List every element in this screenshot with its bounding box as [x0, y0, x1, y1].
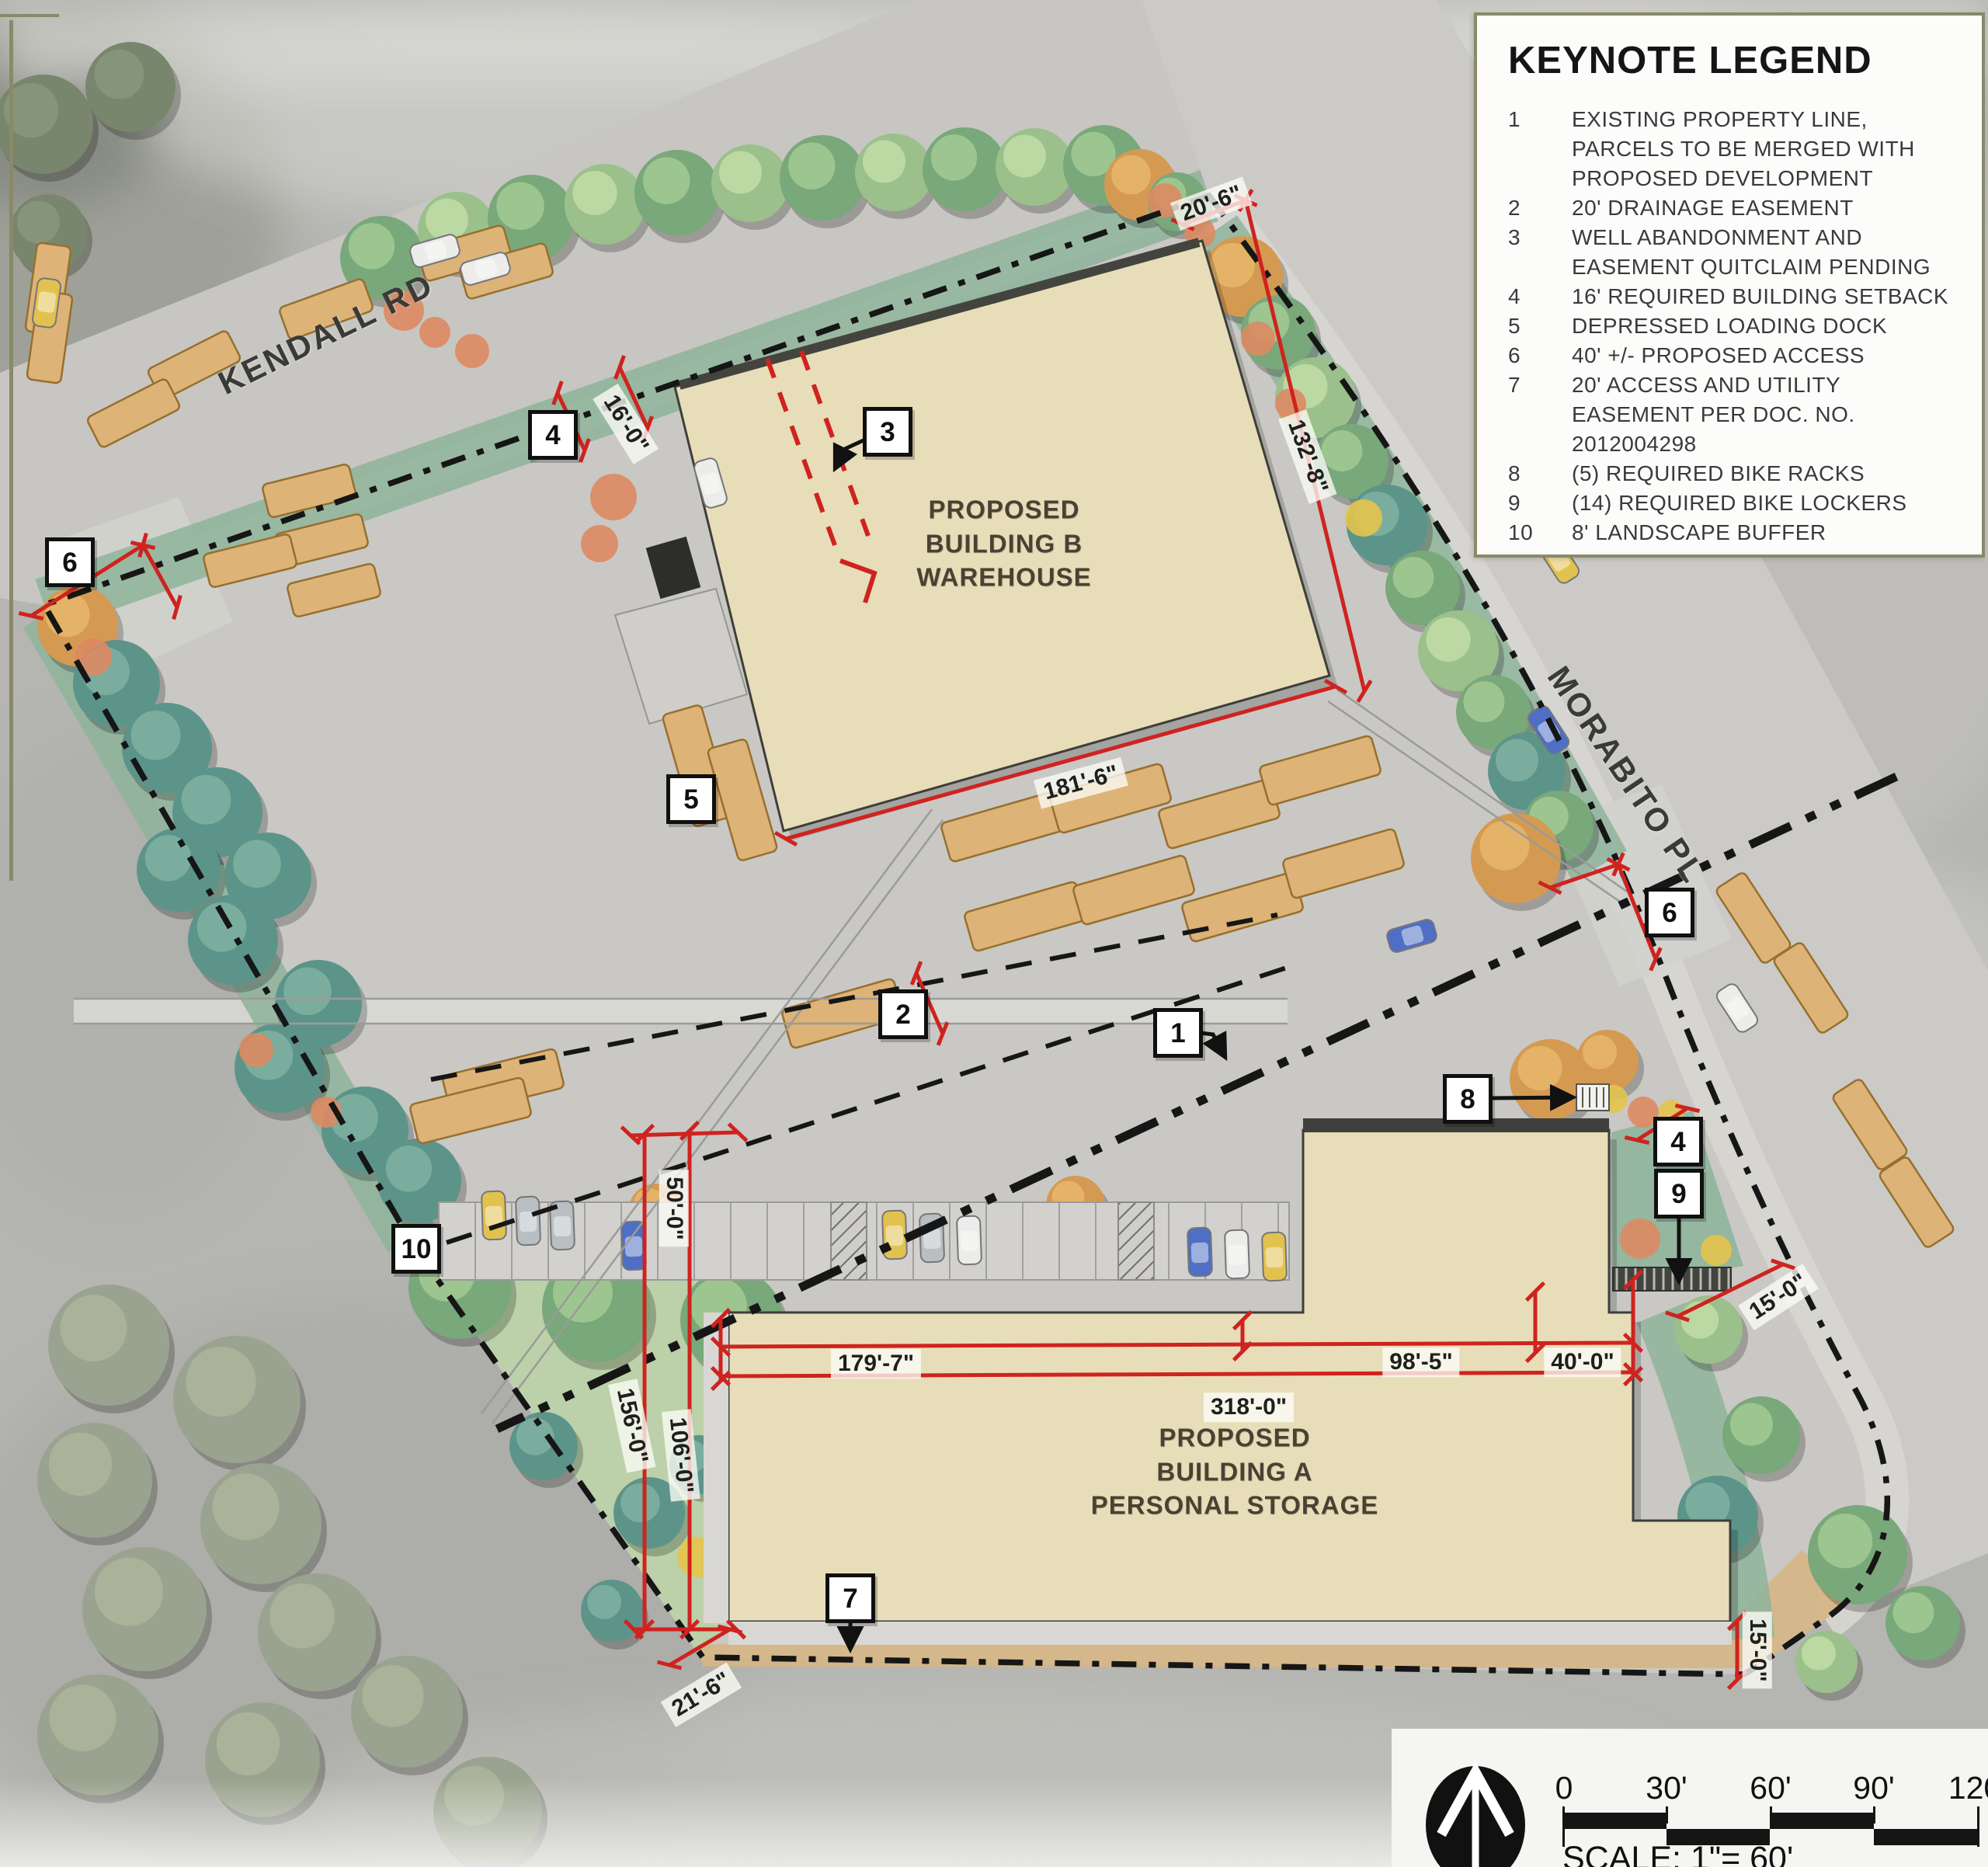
- north-arrow-icon: [1420, 1760, 1536, 1867]
- tree-highlight: [620, 1483, 660, 1523]
- keynote-leader: [1491, 1097, 1572, 1098]
- tree-highlight: [95, 1558, 163, 1626]
- tree-highlight: [50, 1684, 116, 1751]
- legend-item-number: 5: [1508, 311, 1572, 341]
- legend-item: 8 (5) REQUIRED BIKE RACKS: [1508, 459, 1962, 488]
- tree-highlight: [145, 835, 191, 881]
- tree-highlight: [931, 134, 977, 180]
- keynote-legend: KEYNOTE LEGEND 1 EXISTING PROPERTY LINE,…: [1474, 12, 1985, 558]
- legend-item-number: 6: [1508, 341, 1572, 370]
- car-roof: [961, 1231, 978, 1252]
- legend-item-number: 10: [1508, 518, 1572, 548]
- legend-item-text: (5) REQUIRED BIKE RACKS: [1572, 459, 1962, 488]
- coral-shrub: [1241, 322, 1275, 356]
- yellow-shrub: [1701, 1235, 1732, 1266]
- tree-highlight: [1393, 557, 1434, 598]
- tree-highlight: [182, 775, 231, 825]
- tree-highlight: [1818, 1514, 1872, 1568]
- scale-bar: 0 30' 60' 90' 120': [1562, 1755, 1982, 1848]
- tree-highlight: [1517, 1046, 1562, 1090]
- legend-item: 1 EXISTING PROPERTY LINE, PARCELS TO BE …: [1508, 105, 1962, 193]
- car-roof: [625, 1236, 643, 1257]
- tree-highlight: [131, 711, 181, 760]
- coral-shrub: [1628, 1097, 1659, 1128]
- tree-highlight: [95, 50, 144, 99]
- coral-shrub: [590, 474, 637, 520]
- scale-seg-4: [1874, 1829, 1978, 1845]
- scale-tick-60: 60': [1750, 1772, 1791, 1804]
- tree-highlight: [233, 840, 281, 888]
- building-a-south-walk: [728, 1622, 1732, 1645]
- tree-highlight: [587, 1585, 621, 1619]
- tree-highlight: [719, 151, 762, 194]
- scale-panel: 0 30' 60' 90' 120' SCALE: 1"= 60': [1392, 1729, 1988, 1867]
- scale-seg-1: [1562, 1813, 1667, 1829]
- legend-item-text: 40' +/- PROPOSED ACCESS: [1572, 341, 1962, 370]
- tree-highlight: [1111, 155, 1151, 195]
- tree-highlight: [1003, 135, 1046, 178]
- coral-shrub: [1620, 1219, 1660, 1259]
- sheet-border-left: [9, 20, 13, 881]
- tree-highlight: [217, 1712, 280, 1775]
- legend-item-text: 16' REQUIRED BUILDING SETBACK: [1572, 282, 1962, 311]
- scale-text: SCALE: 1"= 60': [1562, 1842, 1793, 1867]
- yellow-shrub: [1345, 499, 1382, 537]
- legend-item-number: 4: [1508, 282, 1572, 311]
- bike-lockers: [1613, 1267, 1731, 1291]
- building-a-west-walk: [704, 1312, 728, 1623]
- coral-shrub: [581, 525, 618, 562]
- legend-item: 10 8' LANDSCAPE BUFFER: [1508, 518, 1962, 548]
- legend-item-text: (14) REQUIRED BIKE LOCKERS: [1572, 488, 1962, 518]
- legend-item: 5 DEPRESSED LOADING DOCK: [1508, 311, 1962, 341]
- legend-item: 2 20' DRAINAGE EASEMENT: [1508, 193, 1962, 223]
- hatched-stall: [1118, 1202, 1154, 1280]
- building-a-roof-edge: [1303, 1118, 1609, 1132]
- car-roof: [1191, 1243, 1209, 1264]
- tree-highlight: [1583, 1035, 1617, 1069]
- tree-highlight: [186, 1347, 255, 1417]
- tree-highlight: [349, 223, 394, 269]
- tree-highlight: [269, 1584, 335, 1649]
- tree-highlight: [49, 1433, 112, 1496]
- tree-highlight: [1802, 1636, 1836, 1671]
- tree-highlight: [1426, 617, 1470, 662]
- tree-highlight: [1893, 1592, 1934, 1633]
- scale-tick-90: 90': [1853, 1772, 1894, 1804]
- legend-item-number: 9: [1508, 488, 1572, 518]
- tree-highlight: [1730, 1403, 1773, 1446]
- tree-highlight: [283, 968, 332, 1016]
- legend-item-text: DEPRESSED LOADING DOCK: [1572, 311, 1962, 341]
- tree-highlight: [496, 183, 544, 231]
- tree-highlight: [788, 142, 836, 189]
- legend-title: KEYNOTE LEGEND: [1508, 42, 1962, 80]
- coral-shrub: [419, 317, 450, 348]
- tree-highlight: [1496, 739, 1538, 782]
- tree-highlight: [1322, 430, 1363, 471]
- legend-item-number: 3: [1508, 223, 1572, 282]
- car-roof: [554, 1216, 572, 1237]
- legend-item: 7 20' ACCESS AND UTILITY EASEMENT PER DO…: [1508, 370, 1962, 459]
- tree-highlight: [362, 1665, 423, 1726]
- legend-item-number: 8: [1508, 459, 1572, 488]
- sheet-border-top: [0, 14, 59, 17]
- tree-highlight: [1480, 821, 1530, 871]
- coral-shrub: [239, 1033, 273, 1067]
- scale-tick-30: 30': [1646, 1772, 1687, 1804]
- legend-item-text: EXISTING PROPERTY LINE, PARCELS TO BE ME…: [1572, 105, 1962, 193]
- scale-seg-3: [1770, 1813, 1874, 1829]
- tree-highlight: [213, 1473, 280, 1540]
- coral-shrub: [455, 334, 489, 368]
- legend-item-text: 20' DRAINAGE EASEMENT: [1572, 193, 1962, 223]
- car-roof: [1266, 1247, 1284, 1268]
- tree-highlight: [1464, 681, 1505, 722]
- tree-highlight: [643, 157, 690, 204]
- legend-item: 9 (14) REQUIRED BIKE LOCKERS: [1508, 488, 1962, 518]
- legend-item: 6 40' +/- PROPOSED ACCESS: [1508, 341, 1962, 370]
- legend-item: 4 16' REQUIRED BUILDING SETBACK: [1508, 282, 1962, 311]
- scale-tick-0: 0: [1555, 1772, 1573, 1804]
- tree-highlight: [863, 141, 905, 183]
- site-plan-sheet: 20'-6"132'-8"16'-0"181'-6"50'-0"156'-0"1…: [0, 0, 1988, 1867]
- car-roof: [36, 291, 56, 314]
- sheet-bottom-fade: [0, 1778, 1392, 1867]
- coral-shrub: [1148, 183, 1182, 217]
- coral-shrub: [384, 290, 424, 331]
- legend-item-text: 20' ACCESS AND UTILITY EASEMENT PER DOC.…: [1572, 370, 1962, 459]
- tree-highlight: [572, 171, 617, 215]
- tree-highlight: [17, 201, 60, 244]
- tree-highlight: [61, 1295, 127, 1361]
- scale-tick-120: 120': [1948, 1772, 1988, 1804]
- car-roof: [1229, 1245, 1246, 1266]
- legend-item-text: 8' LANDSCAPE BUFFER: [1572, 518, 1962, 548]
- legend-item-number: 1: [1508, 105, 1572, 193]
- legend-item-number: 7: [1508, 370, 1572, 459]
- tree-highlight: [386, 1146, 432, 1191]
- legend-item-number: 2: [1508, 193, 1572, 223]
- legend-item: 3 WELL ABANDONMENT AND EASEMENT QUITCLAI…: [1508, 223, 1962, 282]
- legend-item-text: WELL ABANDONMENT AND EASEMENT QUITCLAIM …: [1572, 223, 1962, 282]
